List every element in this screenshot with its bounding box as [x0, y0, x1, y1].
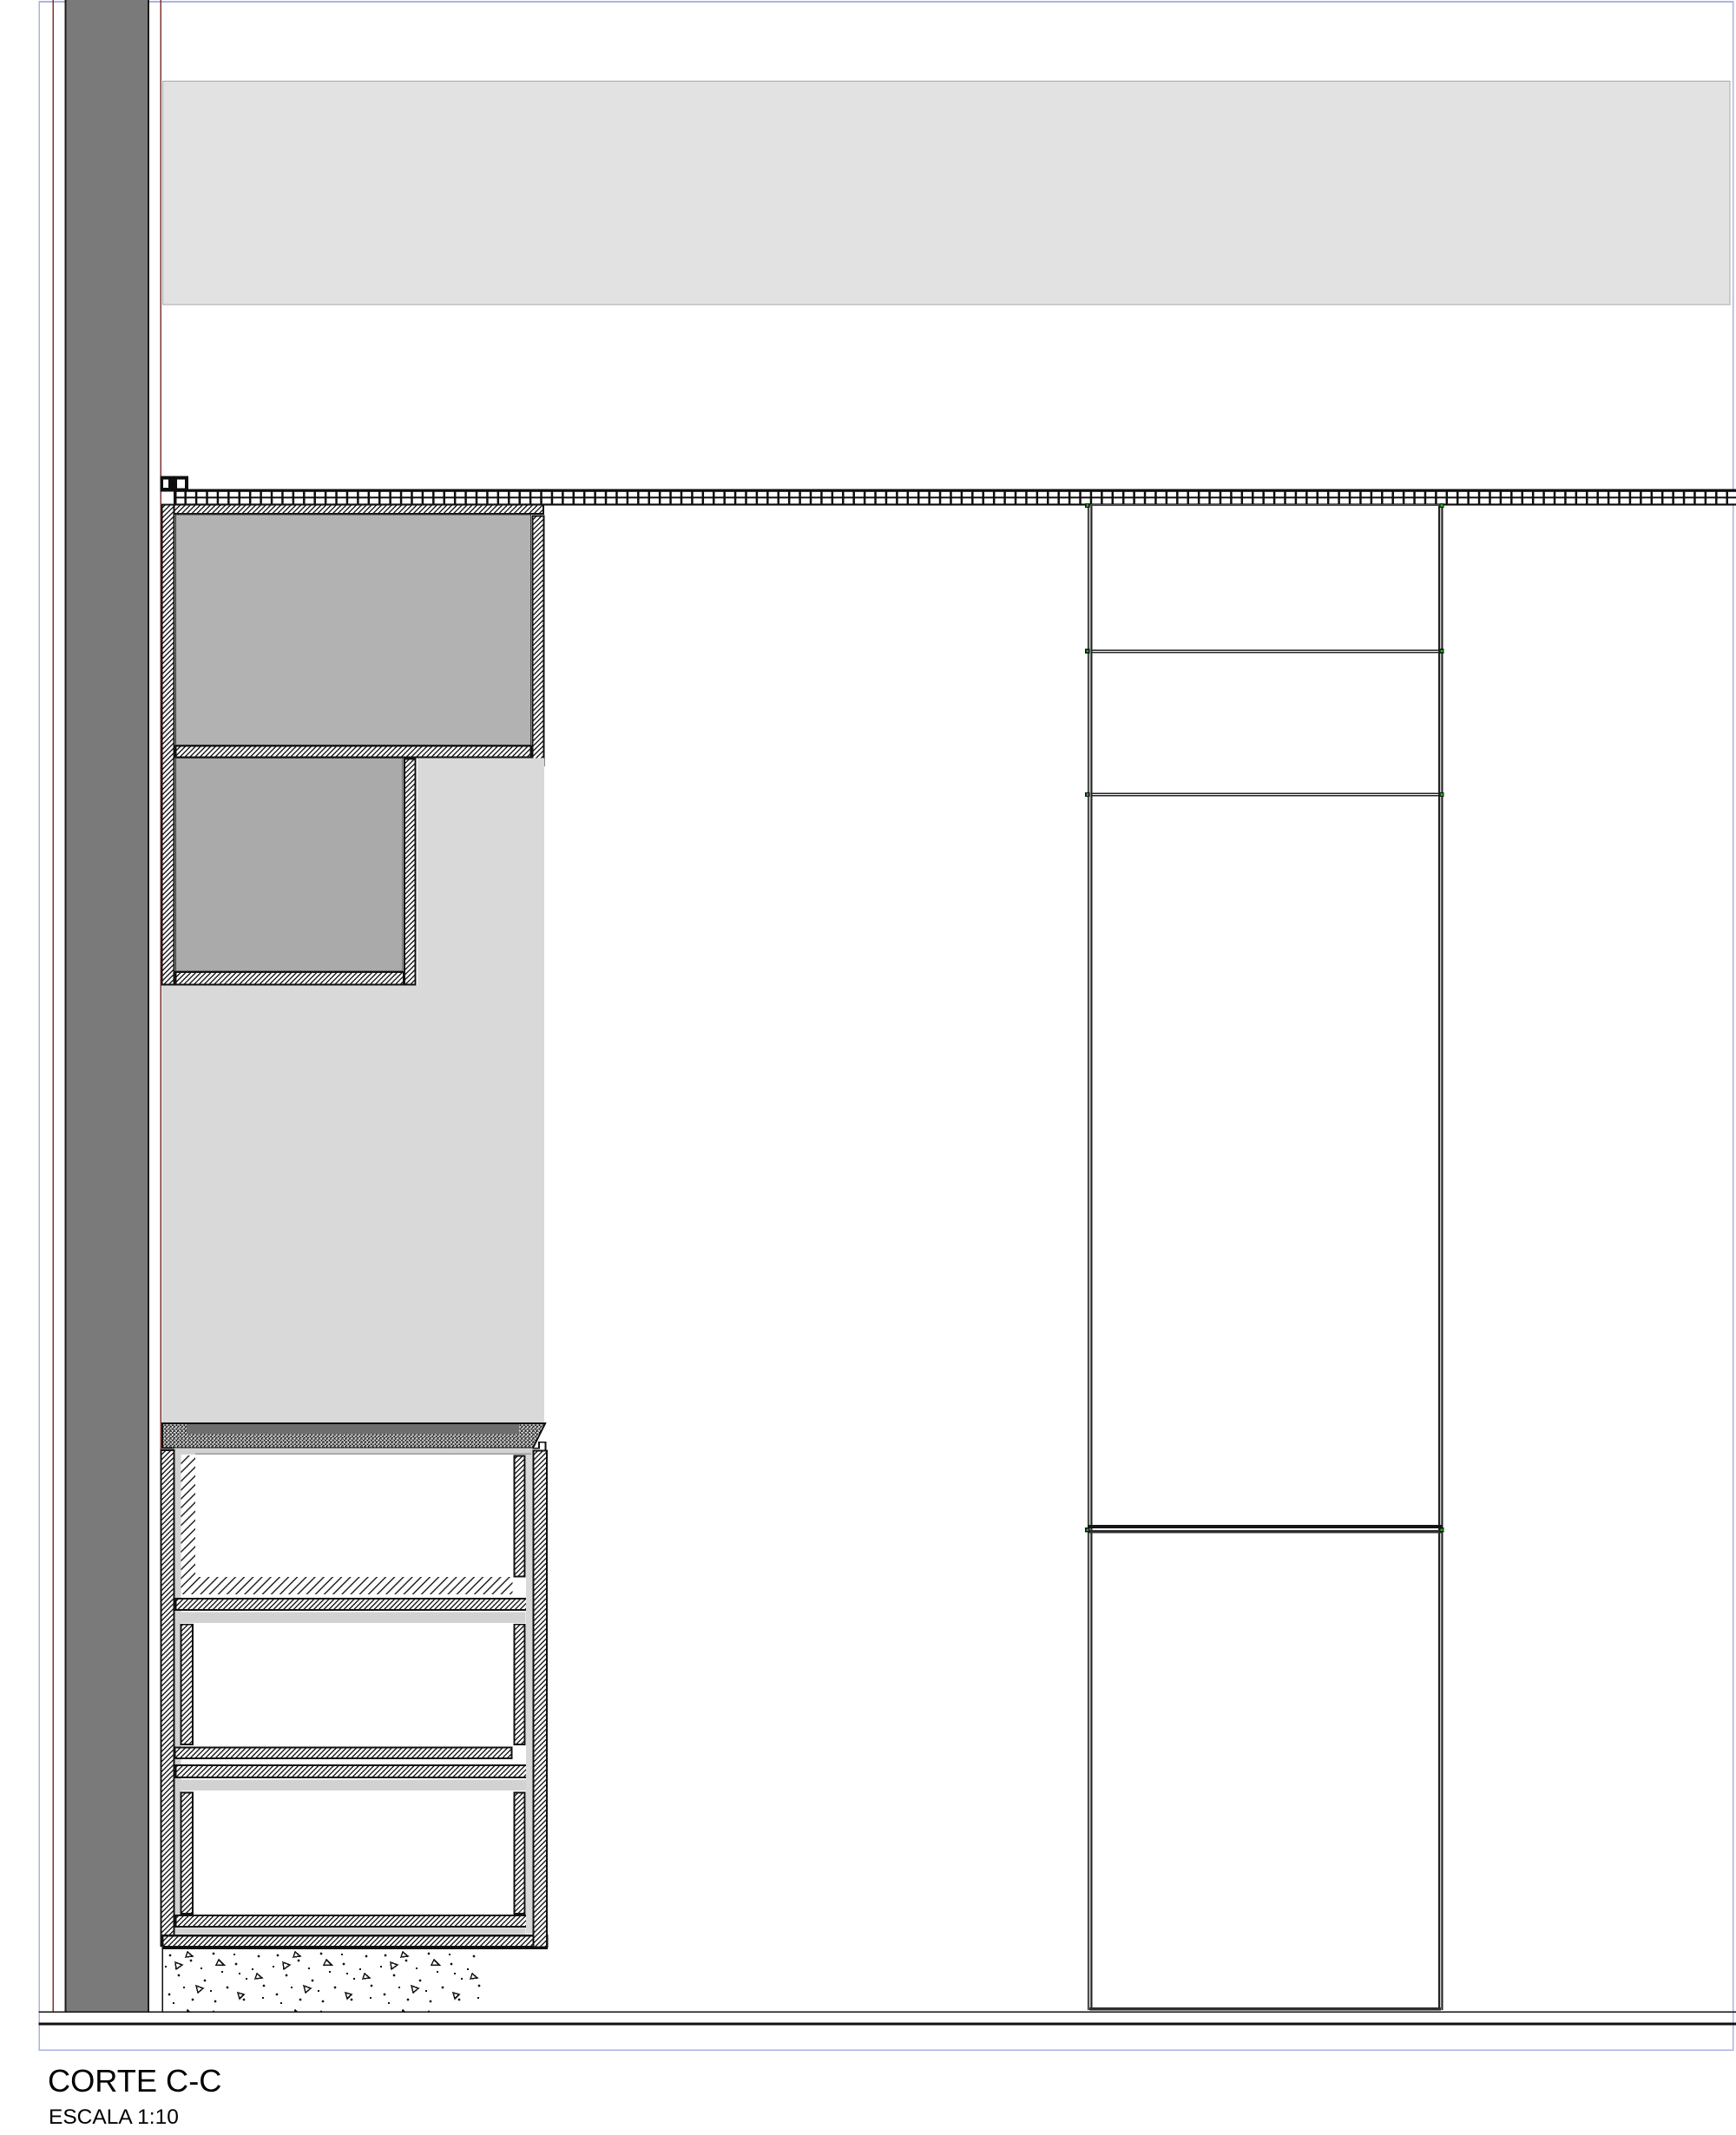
svg-text:CORTE C-C: CORTE C-C [48, 2063, 221, 2099]
svg-text:ESCALA 1:10: ESCALA 1:10 [49, 2105, 179, 2129]
